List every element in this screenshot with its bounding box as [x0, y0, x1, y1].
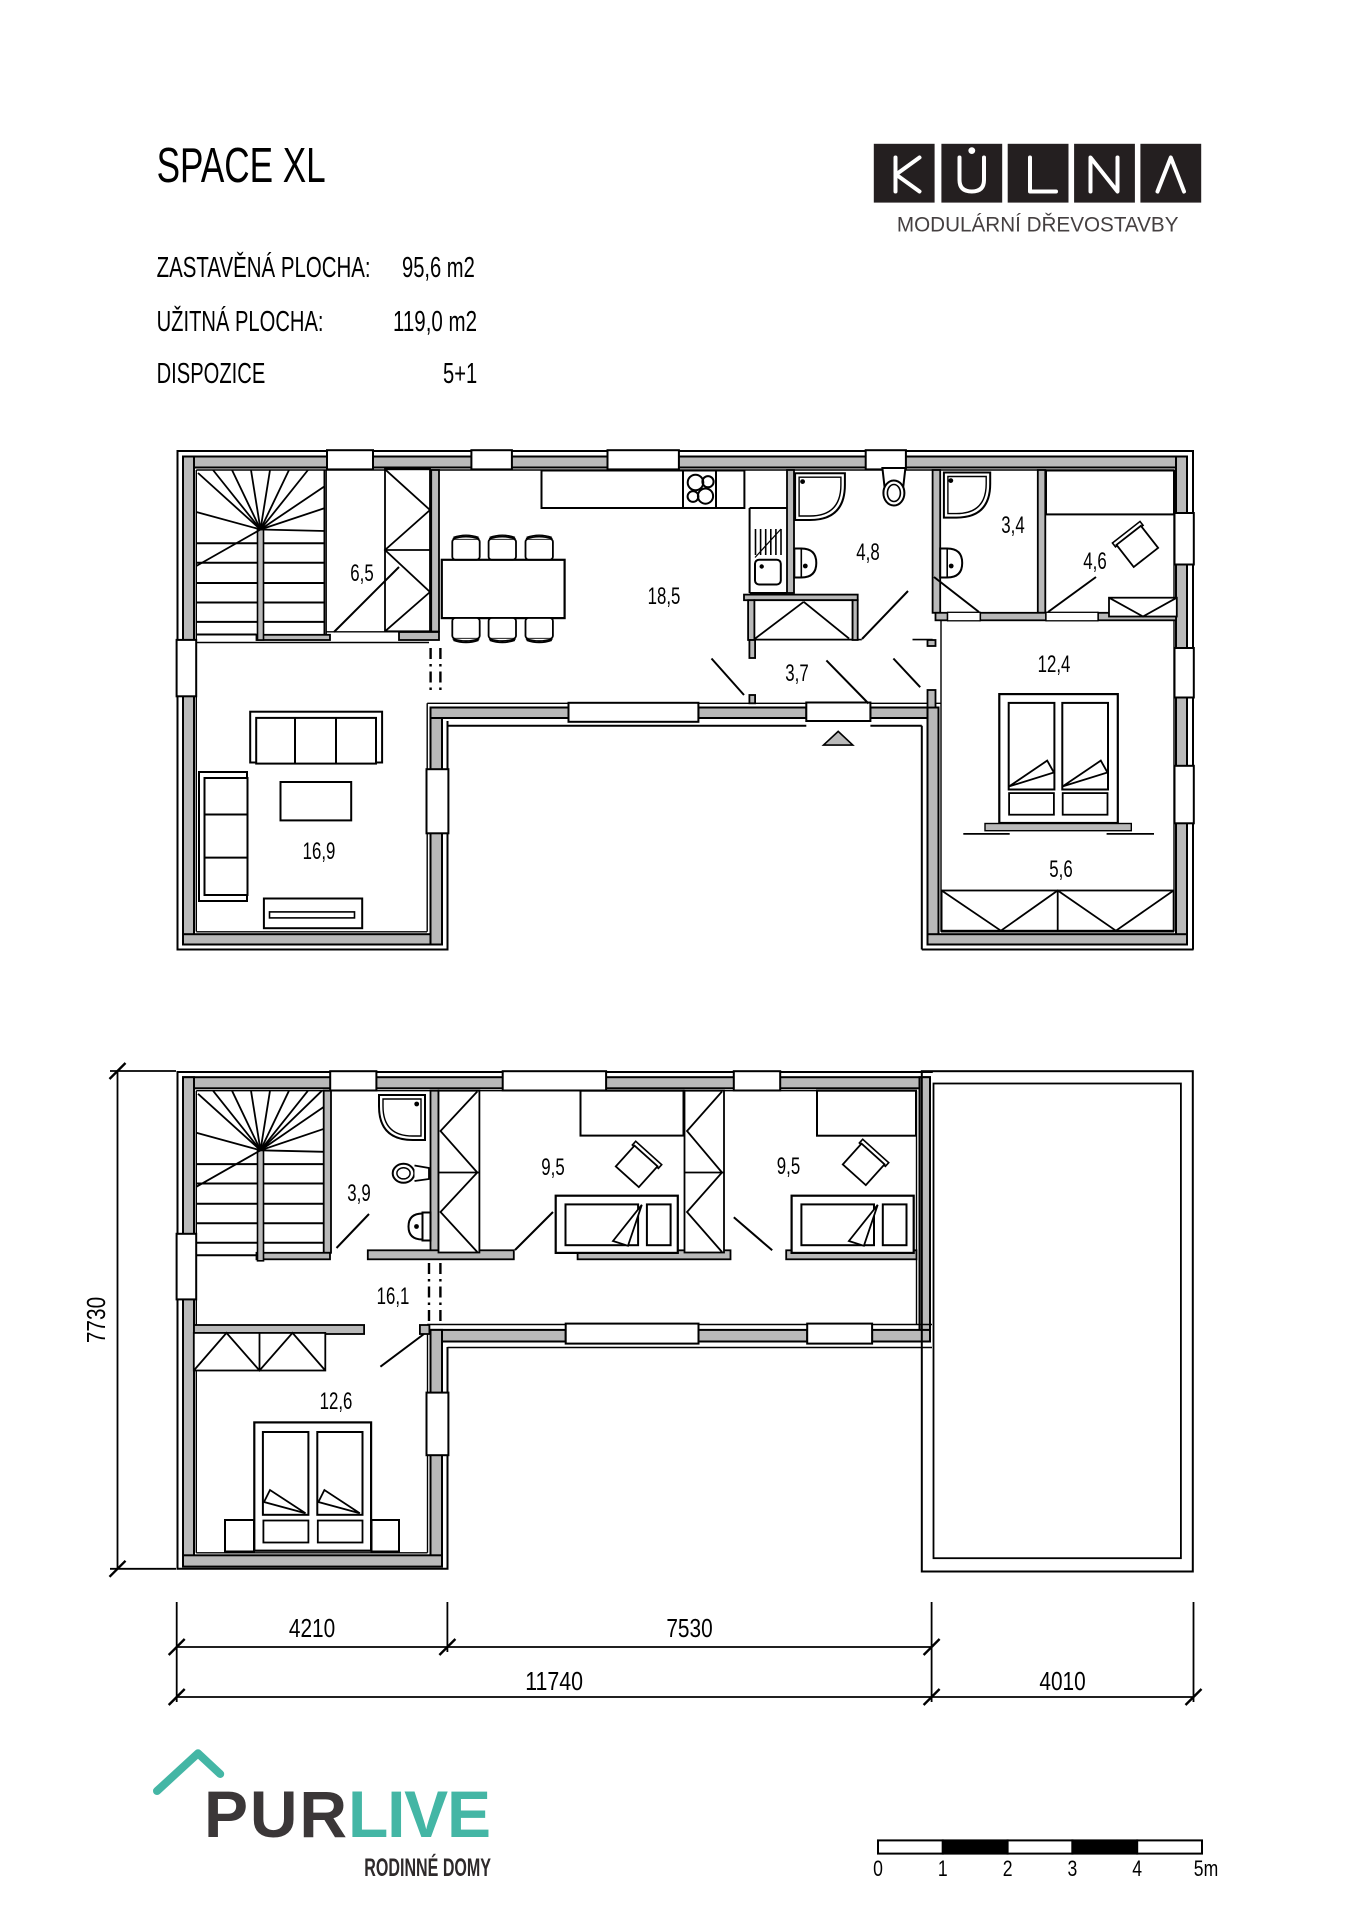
svg-text:12,6: 12,6 — [320, 1388, 353, 1415]
svg-text:2: 2 — [1003, 1856, 1013, 1881]
svg-text:9,5: 9,5 — [777, 1153, 800, 1180]
svg-text:4,8: 4,8 — [856, 539, 879, 566]
svg-text:MODULÁRNÍ DŘEVOSTAVBY: MODULÁRNÍ DŘEVOSTAVBY — [897, 214, 1179, 237]
svg-text:6,5: 6,5 — [350, 560, 373, 587]
svg-text:ZASTAVĚNÁ PLOCHA:: ZASTAVĚNÁ PLOCHA: — [157, 251, 371, 284]
svg-text:0: 0 — [873, 1856, 883, 1881]
svg-text:4,6: 4,6 — [1083, 548, 1106, 575]
svg-text:18,5: 18,5 — [648, 583, 681, 610]
svg-text:7730: 7730 — [81, 1297, 111, 1343]
svg-text:SPACE XL: SPACE XL — [157, 138, 326, 193]
svg-text:12,4: 12,4 — [1038, 651, 1071, 678]
svg-text:3,7: 3,7 — [785, 660, 808, 687]
svg-text:16,1: 16,1 — [377, 1283, 410, 1310]
svg-text:9,5: 9,5 — [541, 1154, 564, 1181]
svg-text:3,9: 3,9 — [347, 1180, 370, 1207]
svg-text:5,6: 5,6 — [1049, 856, 1072, 883]
svg-text:LIVE: LIVE — [348, 1777, 491, 1851]
svg-text:11740: 11740 — [525, 1666, 583, 1696]
svg-text:RODINNÉ DOMY: RODINNÉ DOMY — [364, 1853, 491, 1882]
svg-text:4010: 4010 — [1039, 1666, 1085, 1696]
svg-text:4210: 4210 — [289, 1613, 335, 1643]
svg-text:95,6 m2: 95,6 m2 — [402, 252, 475, 284]
svg-text:1: 1 — [938, 1856, 948, 1881]
svg-text:5m: 5m — [1194, 1856, 1218, 1881]
svg-text:3,4: 3,4 — [1001, 512, 1024, 539]
svg-text:7530: 7530 — [666, 1613, 712, 1643]
svg-text:UŽITNÁ PLOCHA:: UŽITNÁ PLOCHA: — [157, 305, 324, 338]
svg-text:3: 3 — [1068, 1856, 1078, 1881]
svg-text:4: 4 — [1132, 1856, 1142, 1881]
svg-text:5+1: 5+1 — [443, 358, 477, 390]
svg-text:PUR: PUR — [204, 1777, 347, 1851]
svg-text:DISPOZICE: DISPOZICE — [157, 358, 266, 390]
svg-text:119,0 m2: 119,0 m2 — [393, 306, 477, 338]
svg-text:16,9: 16,9 — [303, 838, 336, 865]
